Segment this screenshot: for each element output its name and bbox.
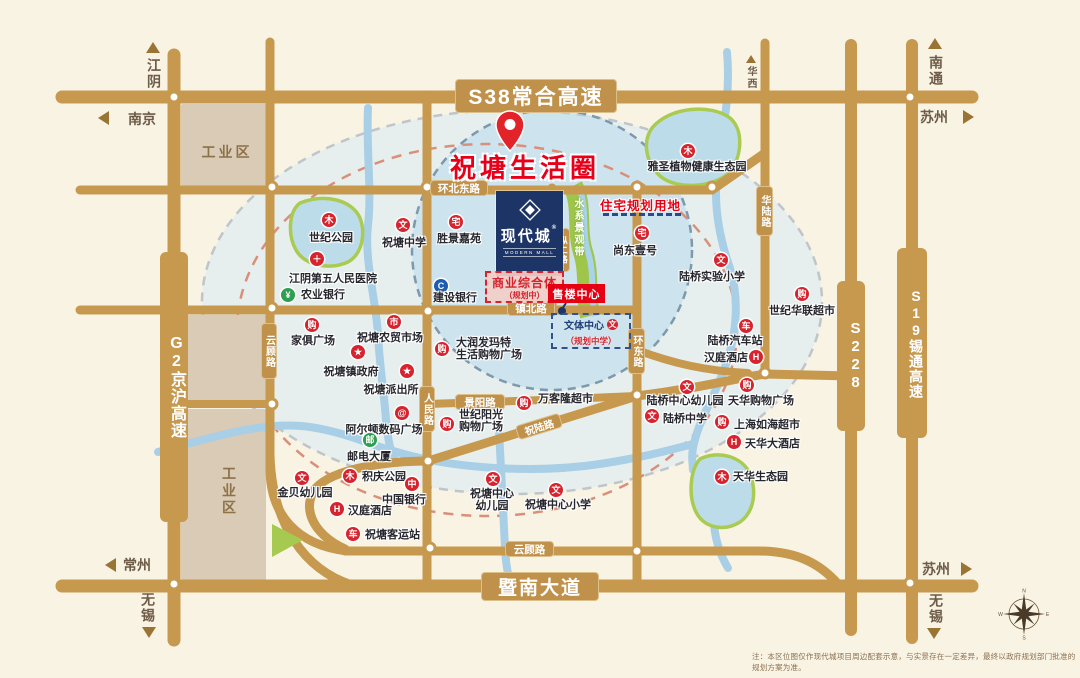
poi-label: 积庆公园 <box>362 471 406 483</box>
bank-icon: C <box>434 279 448 293</box>
poi-label: 家俱广场 <box>291 335 335 347</box>
direction-suzhou-ne: 苏州 <box>920 107 948 127</box>
shopping-icon: 购 <box>440 417 454 431</box>
poi-label: 祝塘中心 <box>470 488 514 500</box>
road-label-s19: S19锡通高速 <box>899 253 926 433</box>
digital-plaza-icon: @ <box>395 406 409 420</box>
hotel-icon: H <box>749 350 763 364</box>
svg-text:W: W <box>998 612 1003 618</box>
poi-label: 祝塘派出所 <box>364 384 419 396</box>
road-label-g2: G2京沪高速 <box>161 258 188 516</box>
poi-label: 祝塘客运站 <box>365 529 420 541</box>
hospital-icon: ＋ <box>310 252 324 266</box>
poi-label: 幼儿园 <box>476 500 509 512</box>
poi-label: 邮电大厦 <box>347 451 391 463</box>
poi-label: 大润发玛特 <box>456 337 511 349</box>
direction-wuxi-se: 无锡 <box>926 593 946 625</box>
school-icon: 文 <box>714 253 728 267</box>
poi-label: 生活购物广场 <box>456 349 522 361</box>
road-label-s228: S228 <box>838 287 864 425</box>
poi-label: 上海如海超市 <box>734 419 800 431</box>
modern-mall-block: 现代城® MODERN MALL <box>496 191 563 276</box>
road-label-hualu: 华陆路 <box>756 186 773 236</box>
culture-center-box: 文体中心文 （规划中学） <box>551 313 631 349</box>
poi-label: 雅圣植物健康生态园 <box>648 161 747 173</box>
arrow-up-icon <box>928 38 942 49</box>
hotel-icon: H <box>727 435 741 449</box>
shopping-icon: 购 <box>715 415 729 429</box>
road-label-yungu-vertical: 云顾路 <box>261 323 277 379</box>
arrow-up-icon <box>746 55 756 63</box>
project-area-title: 祝塘生活圈 <box>450 148 600 185</box>
culture-center-note: （规划中学） <box>553 335 629 347</box>
poi-label: 江阴第五人民医院 <box>289 273 377 285</box>
poi-label: 陆桥中心幼儿园 <box>647 395 724 407</box>
market-icon: 市 <box>387 315 401 329</box>
water-belt-label: 水系景观带 <box>570 198 585 258</box>
compass-icon: N S W E <box>998 588 1050 640</box>
poi-label: 世纪公园 <box>309 232 353 244</box>
arrow-left-icon <box>105 558 116 572</box>
shopping-icon: 购 <box>740 378 754 392</box>
poi-label: 购物广场 <box>459 421 503 433</box>
svg-text:E: E <box>1046 612 1050 618</box>
kindergarten-icon: 文 <box>680 380 694 394</box>
poi-label: 世纪华联超市 <box>769 305 835 317</box>
poi-label: 陆桥汽车站 <box>708 335 763 347</box>
bus-station-icon: 车 <box>739 319 753 333</box>
road-label-jinan: 暨南大道 <box>481 572 599 601</box>
poi-label: 农业银行 <box>301 289 345 301</box>
school-icon: 文 <box>607 319 618 330</box>
arrow-left-icon <box>98 111 109 125</box>
poi-label: 胜景嘉苑 <box>437 233 481 245</box>
bus-station-icon: 车 <box>346 527 360 541</box>
zone-industrial-sw: 工业区 <box>219 466 239 517</box>
post-icon: 邮 <box>363 433 377 447</box>
svg-text:S: S <box>1022 636 1026 641</box>
poi-label: 世纪阳光 <box>459 409 503 421</box>
shopping-icon: 购 <box>795 287 809 301</box>
shopping-icon: 购 <box>435 342 449 356</box>
school-icon: 文 <box>396 218 410 232</box>
poi-label: 祝塘农贸市场 <box>357 332 423 344</box>
direction-wuxi-sw: 无锡 <box>138 592 158 624</box>
poi-label: 祝塘中学 <box>382 237 426 249</box>
residential-planning-dash <box>603 213 681 216</box>
kindergarten-icon: 文 <box>486 472 500 486</box>
modern-mall-logo-icon <box>517 197 543 223</box>
disclaimer-text: 注：本区位图仅作现代城项目周边配套示意，与实景存在一定差异，最终以政府规划部门批… <box>752 651 1080 673</box>
poi-label: 尚东壹号 <box>613 245 657 257</box>
road-label-yungu-bottom: 云顾路 <box>505 541 554 557</box>
location-map: S38常合高速 G2京沪高速 S19锡通高速 S228 环北东路 镇北路 纵二路… <box>0 0 1080 678</box>
poi-label: 陆桥实验小学 <box>679 271 745 283</box>
poi-label: 天华大酒店 <box>745 438 800 450</box>
school-icon: 文 <box>549 483 563 497</box>
direction-changzhou: 常州 <box>123 555 151 575</box>
sales-center-badge: 售楼中心 <box>548 284 605 303</box>
direction-nanjing: 南京 <box>128 109 156 129</box>
direction-huaxi: 华西 <box>743 66 758 90</box>
arrow-right-icon <box>963 110 974 124</box>
arrow-up-icon <box>146 42 160 53</box>
poi-label: 祝塘中心小学 <box>525 499 591 511</box>
park-icon: 木 <box>322 213 336 227</box>
road-label-s38: S38常合高速 <box>455 79 617 113</box>
trademark: ® <box>552 225 558 231</box>
residence-icon: 宅 <box>635 226 649 240</box>
poi-label: 汉庭酒店 <box>348 505 392 517</box>
bank-icon: ¥ <box>281 288 295 302</box>
police-icon: ★ <box>400 364 414 378</box>
poi-label: 建设银行 <box>433 292 477 304</box>
project-name: 现代城® <box>501 225 558 246</box>
poi-label: 金贝幼儿园 <box>278 487 333 499</box>
poi-label: 万客隆超市 <box>538 393 593 405</box>
kindergarten-icon: 文 <box>295 471 309 485</box>
road-label-jingyang: 景阳路 <box>455 394 505 410</box>
poi-label: 陆桥中学 <box>663 413 707 425</box>
zone-industrial-nw: 工业区 <box>202 142 253 162</box>
direction-suzhou-se: 苏州 <box>922 559 950 579</box>
park-icon: 木 <box>715 470 729 484</box>
arrow-down-icon <box>927 628 941 639</box>
residence-icon: 宅 <box>449 215 463 229</box>
government-icon: ★ <box>351 345 365 359</box>
bank-icon: 中 <box>405 477 419 491</box>
culture-center-label: 文体中心 <box>564 317 604 332</box>
school-icon: 文 <box>645 409 659 423</box>
project-name-en: MODERN MALL <box>503 248 557 257</box>
arrow-down-icon <box>142 627 156 638</box>
arrow-right-icon <box>961 562 972 576</box>
shopping-icon: 购 <box>305 318 319 332</box>
shopping-icon: 购 <box>517 396 531 410</box>
hotel-icon: H <box>330 502 344 516</box>
svg-text:N: N <box>1022 589 1026 595</box>
poi-label: 天华生态园 <box>733 471 788 483</box>
poi-label: 天华购物广场 <box>728 395 794 407</box>
residential-planning-label: 住宅规划用地 <box>600 195 681 214</box>
direction-jiangyin: 江阴 <box>144 58 164 90</box>
poi-label: 阿尔顿数码广场 <box>346 424 423 436</box>
poi-label: 汉庭酒店 <box>704 352 748 364</box>
park-icon: 木 <box>343 469 357 483</box>
direction-nantong: 南通 <box>926 55 946 87</box>
park-icon: 木 <box>681 144 695 158</box>
poi-label: 祝塘镇政府 <box>324 366 379 378</box>
location-pin-icon <box>495 110 525 152</box>
